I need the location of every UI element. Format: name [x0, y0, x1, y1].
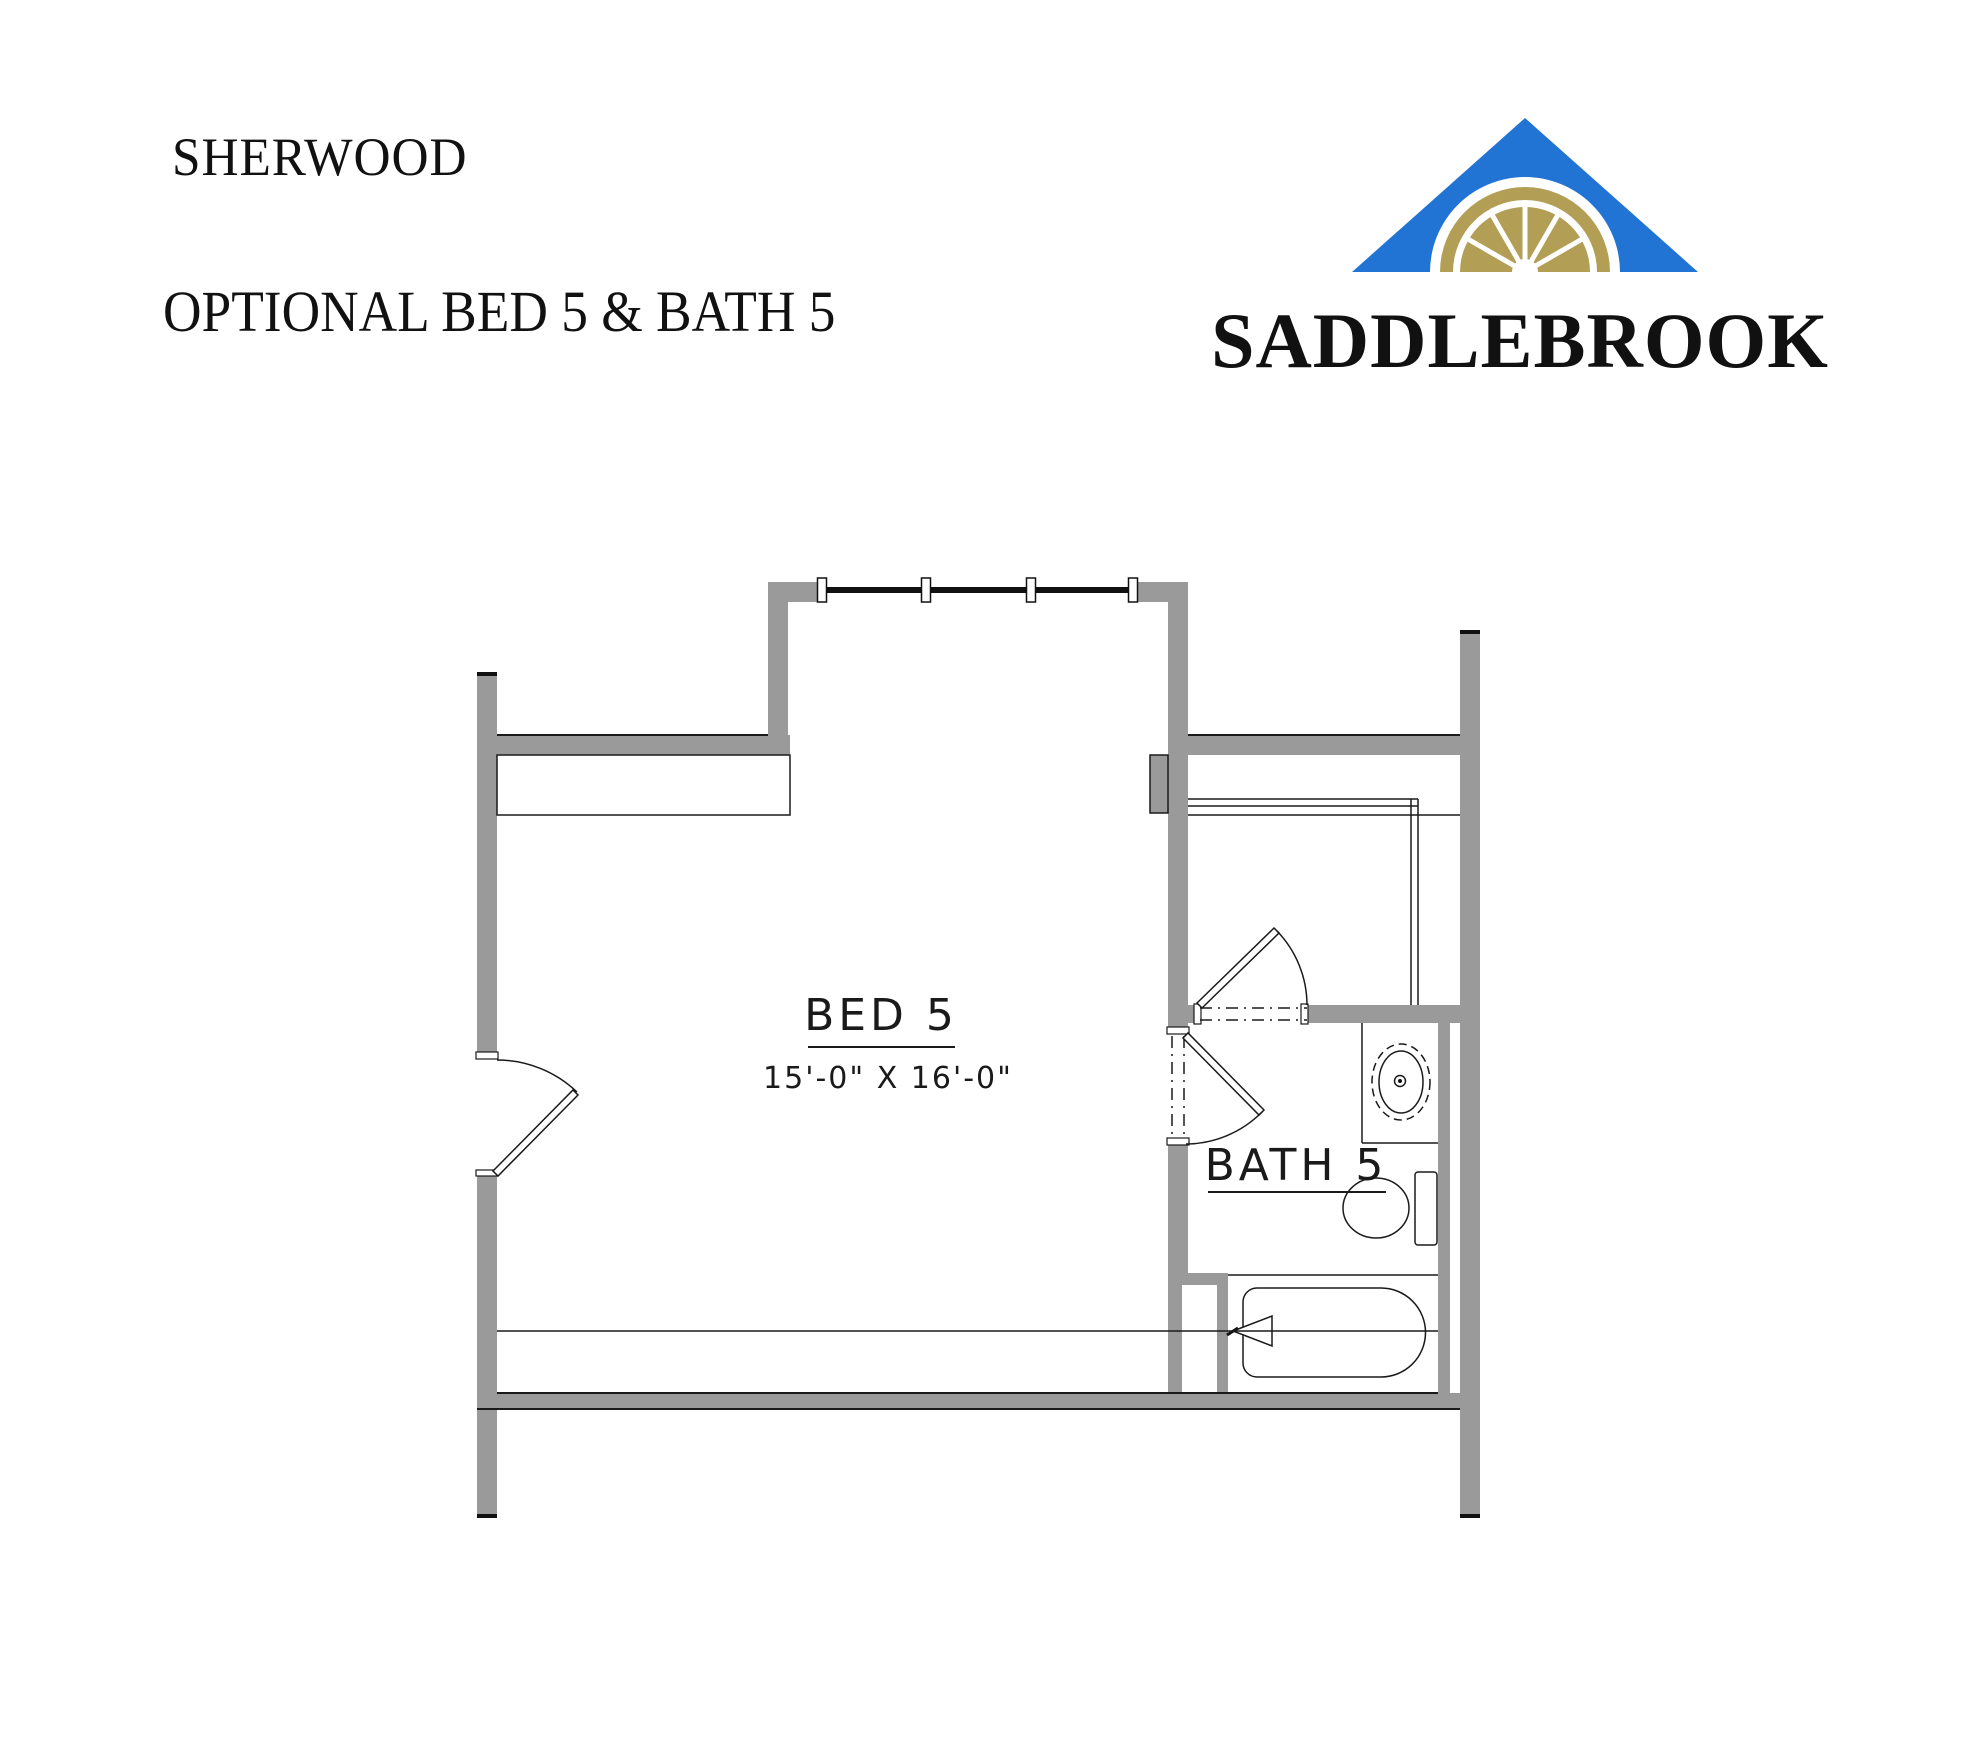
room-labels: BED 5 15'-0" X 16'-0" BATH 5 — [763, 990, 1387, 1192]
bed5-dimensions: 15'-0" X 16'-0" — [763, 1061, 1013, 1096]
storage-shelf — [497, 755, 790, 815]
bath-entry-door — [1167, 1027, 1264, 1145]
bedroom-entry-door — [476, 1052, 578, 1176]
bath5-label: BATH 5 — [1205, 1140, 1388, 1191]
page: SHERWOOD OPTIONAL BED 5 & BATH 5 SADDLEB… — [0, 0, 1982, 1757]
bed5-label: BED 5 — [804, 990, 958, 1041]
walk-in-closet-door — [1194, 928, 1308, 1024]
vanity-sink — [1372, 1044, 1430, 1120]
floor-plan: BED 5 15'-0" X 16'-0" BATH 5 — [0, 0, 1982, 1757]
bay-window — [818, 578, 1138, 602]
